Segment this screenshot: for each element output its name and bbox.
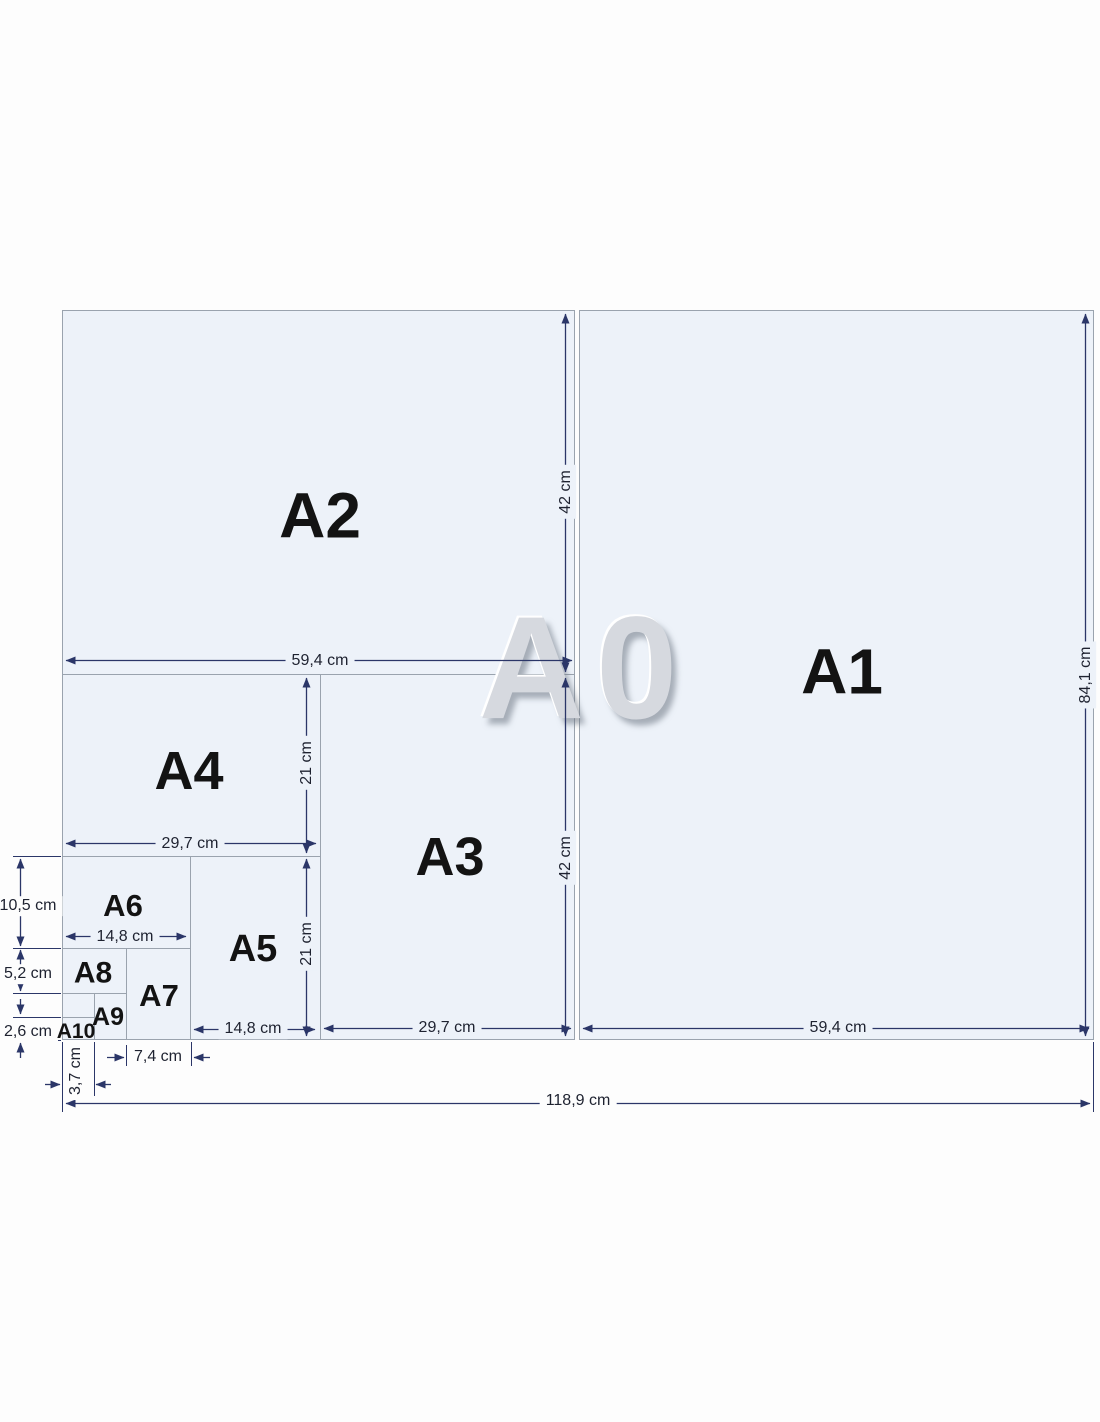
paper-label-a3: A3 xyxy=(415,830,484,884)
dim-a0-height: 84,1 cm xyxy=(1076,642,1096,709)
paper-label-a4: A4 xyxy=(154,744,223,798)
paper-label-a1: A1 xyxy=(801,640,883,704)
paper-label-a10: A10 xyxy=(57,1021,96,1042)
dim-a10-width: 3,7 cm xyxy=(66,1042,86,1100)
dim-a7-width: 7,4 cm xyxy=(128,1047,188,1067)
dim-a5-height: 21 cm xyxy=(297,917,317,971)
paper-sizes-diagram: A0 xyxy=(0,0,1100,1422)
paper-label-a7: A7 xyxy=(139,980,179,1011)
paper-label-a6: A6 xyxy=(103,890,143,921)
divider-a4-bottom xyxy=(62,856,321,857)
dim-a2-height: 42 cm xyxy=(556,465,576,519)
paper-label-a9: A9 xyxy=(92,1005,124,1030)
dim-a6-width: 14,8 cm xyxy=(91,927,160,947)
dim-a8-height: 5,2 cm xyxy=(0,964,58,984)
dim-a10-height: 2,6 cm xyxy=(0,1022,58,1042)
divider-a4-a3 xyxy=(320,674,321,1040)
dim-a3-width: 29,7 cm xyxy=(413,1018,482,1038)
divider-a10-top xyxy=(62,1017,95,1018)
divider-a8-a7 xyxy=(126,948,127,1040)
paper-label-a8: A8 xyxy=(74,958,112,988)
dim-a2-width: 59,4 cm xyxy=(286,651,355,671)
dim-a4-width: 29,7 cm xyxy=(156,834,225,854)
dim-a1-width: 59,4 cm xyxy=(804,1018,873,1038)
dim-a3-height: 42 cm xyxy=(556,831,576,885)
watermark-a0-label: A0 xyxy=(479,595,690,741)
paper-label-a2: A2 xyxy=(279,484,361,548)
dim-a0-width: 118,9 cm xyxy=(540,1091,617,1111)
paper-label-a5: A5 xyxy=(229,930,278,968)
dim-a5-width: 14,8 cm xyxy=(219,1019,288,1039)
dim-a4-height: 21 cm xyxy=(297,736,317,790)
dim-a6-height: 10,5 cm xyxy=(0,896,62,916)
